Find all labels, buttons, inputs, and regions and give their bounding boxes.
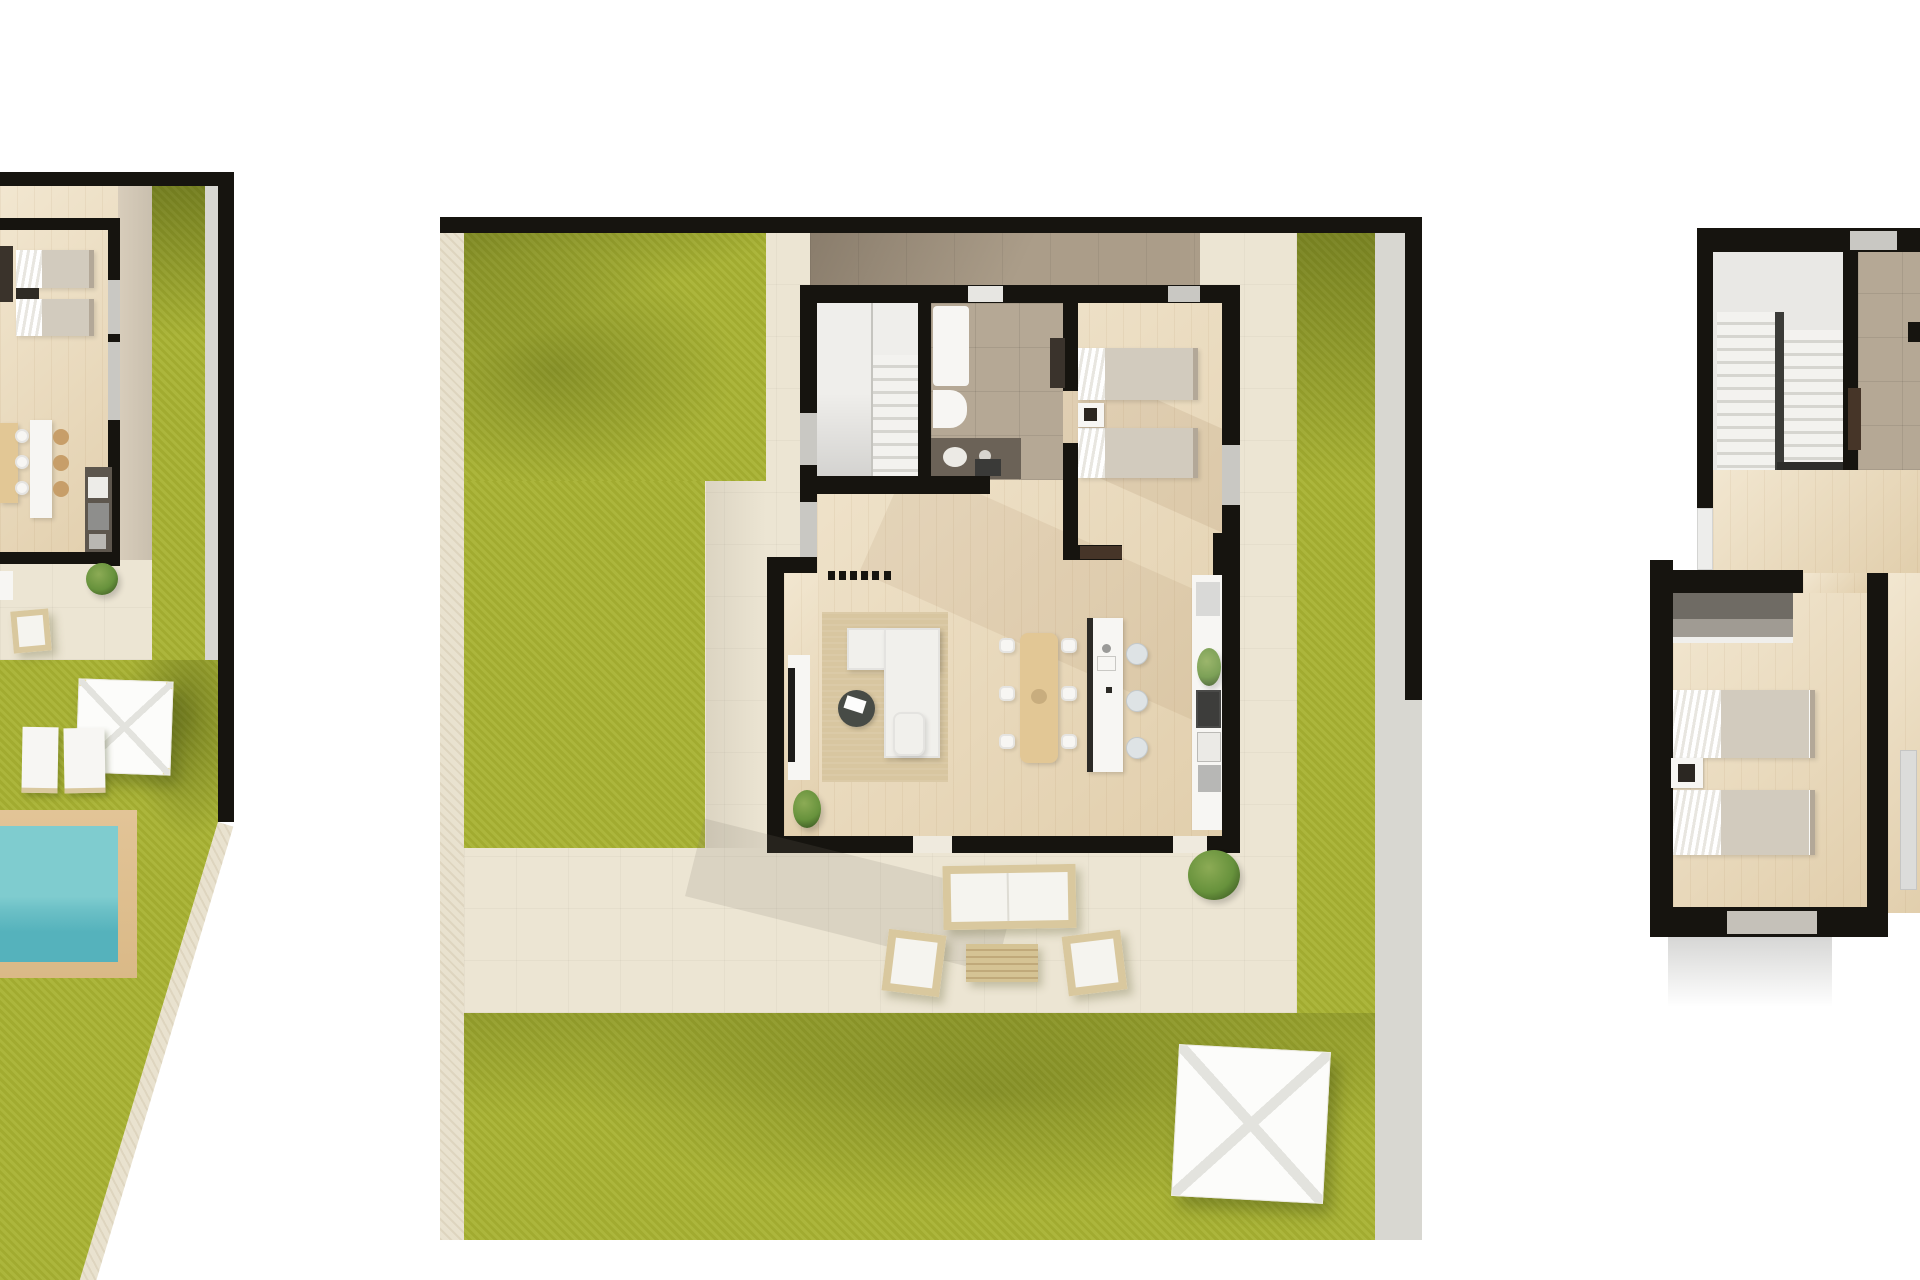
center-door-track-dash-2 [839, 571, 846, 580]
center-bath-shower [933, 306, 969, 386]
left-dining-chair-2 [15, 455, 29, 469]
left-stool-3 [53, 481, 69, 497]
center-island-hob-dot [1106, 687, 1112, 693]
center-right-window [1222, 445, 1240, 505]
center-door-track-dash-6 [884, 571, 891, 580]
center-path-right-lower [1375, 700, 1422, 1240]
center-bath-bed-wall-2 [1063, 443, 1078, 560]
center-coffee-table-laptop [843, 695, 866, 714]
center-dining-chair-5 [1061, 686, 1077, 701]
center-bed-2-pillow [1078, 428, 1105, 478]
left-kitchen-sink [88, 477, 108, 498]
left-bed-2-frame [89, 299, 94, 336]
left-stool-1 [53, 429, 69, 445]
right-bedroom-top-wall [1650, 570, 1803, 593]
center-outdoor-armchair-right [1062, 930, 1128, 997]
left-dining-chair-1 [15, 429, 29, 443]
left-pool-water [0, 826, 118, 962]
center-stone-path-left [440, 233, 464, 1240]
center-living-plant [793, 790, 821, 828]
center-island-dark-edge [1087, 618, 1093, 772]
right-nightstand-plant [1678, 764, 1695, 782]
center-dining-chair-1 [999, 638, 1015, 653]
center-stool-1 [1126, 643, 1148, 665]
left-cooktop [88, 503, 109, 530]
center-boundary-right-wall [1405, 217, 1422, 700]
center-coffee-table [838, 690, 875, 727]
center-dining-table [1020, 633, 1058, 763]
center-dining-chair-2 [999, 686, 1015, 701]
right-bed-1-pillow [1673, 690, 1721, 758]
center-house-left-wall-2 [800, 465, 817, 502]
left-bed-1 [16, 250, 94, 288]
left-bed-2-pillow [16, 299, 42, 336]
left-patio-bush [86, 563, 118, 595]
center-under-stair-wall [817, 476, 990, 494]
center-stool-3 [1126, 737, 1148, 759]
center-parasol [1171, 1044, 1331, 1204]
center-toilet [933, 390, 967, 428]
left-bed-1-frame [89, 250, 94, 288]
center-door-track-dash-3 [850, 571, 857, 580]
left-top-wall [0, 172, 234, 186]
right-bedroom-left-wall [1650, 560, 1673, 937]
left-bedroom-window [108, 280, 120, 334]
right-wardrobe-top [1673, 593, 1793, 619]
right-left-wall [1697, 252, 1713, 508]
right-bedroom-right-wall [1867, 573, 1888, 913]
center-lawn-left [464, 481, 705, 848]
center-bed-1-frame [1193, 348, 1198, 400]
left-nightstand [16, 288, 39, 299]
center-bed-1-blanket [1105, 348, 1193, 400]
center-dining-chair-6 [1061, 734, 1077, 749]
center-stool-2 [1126, 690, 1148, 712]
center-island-faucet [1102, 644, 1111, 653]
center-nightstand-decor [1084, 408, 1097, 421]
center-stair-shadow [817, 393, 871, 481]
right-ground-shadow [1668, 937, 1832, 1007]
center-stair-steps [873, 355, 918, 481]
right-stair-rail [1775, 312, 1784, 474]
right-stair-door-leaf [1848, 388, 1861, 450]
left-bedroom-wall-h [0, 218, 110, 230]
left-sun-lounger-1 [21, 727, 58, 794]
center-outdoor-armchair-left [881, 929, 946, 998]
center-left-window-1 [800, 413, 817, 465]
center-dining-chair-3 [999, 734, 1015, 749]
left-dining-chair-3 [15, 481, 29, 495]
center-bedroom-wardrobe [1050, 338, 1065, 388]
center-vanity-sink [943, 447, 967, 467]
center-stair-bath-wall [918, 303, 931, 481]
center-counter-plant [1197, 648, 1221, 686]
right-stair-flight-left [1717, 312, 1775, 474]
center-island-sink [1097, 656, 1116, 671]
right-hall-floor [1713, 470, 1920, 573]
center-house-bottom-wall-2 [952, 836, 1173, 853]
center-patio-door-2 [1173, 836, 1207, 853]
right-bedroom-door-opening [1803, 573, 1867, 593]
left-wardrobe [0, 246, 13, 302]
center-bath-mat [975, 459, 1001, 476]
right-bed-2-frame [1810, 790, 1815, 855]
center-house-step-wall [767, 557, 817, 573]
center-floor-lamp [795, 750, 810, 765]
right-stair-flight-right [1784, 330, 1843, 462]
center-boundary-top-wall [440, 217, 1422, 233]
left-garden-strip-shadow [152, 186, 205, 336]
left-kitchen-island [30, 420, 52, 518]
right-landing-tile [1858, 252, 1920, 470]
right-wardrobe-shelf [1673, 637, 1793, 643]
center-door-track-dash-4 [861, 571, 868, 580]
left-lounge-chair [10, 608, 52, 653]
center-outdoor-table [966, 944, 1038, 982]
center-outdoor-sofa-seam [1007, 873, 1010, 921]
center-fridge [1196, 582, 1220, 616]
center-left-window-2 [800, 502, 817, 557]
center-house-left-wall-1 [800, 303, 817, 413]
right-bed-1-blanket [1721, 690, 1809, 758]
right-left-window [1697, 508, 1713, 570]
center-lawn-right-shadow [1297, 233, 1375, 483]
left-bed-1-pillow [16, 250, 42, 288]
center-house-left-wall-3 [767, 573, 784, 853]
center-door-track-dash-5 [872, 571, 879, 580]
left-kitchen-appliance [89, 534, 106, 549]
center-bedroom-window [1168, 286, 1200, 302]
center-nightstand [1078, 403, 1104, 427]
center-outdoor-sofa [942, 864, 1076, 930]
center-terrace-bush [1188, 850, 1240, 900]
center-entrance-porch [810, 233, 1200, 285]
center-dining-chair-4 [1061, 638, 1077, 653]
left-wall-window-2 [108, 342, 120, 420]
right-bed-2-pillow [1673, 790, 1721, 855]
center-bed-2-blanket [1105, 428, 1193, 478]
center-entrance-door [968, 286, 1003, 302]
center-kitchen-sink [1197, 732, 1221, 762]
floor-plans-canvas [0, 0, 1920, 1280]
left-side-terrace [118, 186, 152, 564]
left-bed-2 [16, 299, 94, 336]
center-bed-1 [1078, 348, 1198, 400]
center-path-right [1375, 233, 1405, 700]
center-lawn-upper-left-shadow [464, 233, 766, 481]
center-staircase [817, 303, 918, 481]
right-bedroom-bottom-window [1727, 911, 1817, 934]
left-stool-2 [53, 455, 69, 471]
left-bed-2-blanket [42, 299, 89, 336]
center-dining-centerpiece [1031, 689, 1047, 704]
left-sun-lounger-2 [63, 728, 105, 794]
center-door-track-dash-1 [828, 571, 835, 580]
center-hall-corner-wall [1213, 533, 1240, 580]
right-bed-2-blanket [1721, 790, 1809, 855]
right-bed-2 [1673, 790, 1815, 855]
center-bed-2 [1078, 428, 1198, 478]
right-open-door-leaf [1900, 750, 1917, 890]
center-sofa-pouf [893, 712, 925, 756]
left-patio-planter [0, 571, 13, 600]
center-hall-door [1080, 546, 1122, 559]
right-wardrobe [1673, 593, 1793, 643]
center-kitchen-island [1087, 618, 1123, 772]
center-cooktop [1196, 690, 1221, 728]
left-right-wall [218, 186, 234, 822]
center-kitchen-appliance [1198, 765, 1221, 792]
center-bed-1-pillow [1078, 348, 1105, 400]
center-bed-2-frame [1193, 428, 1198, 478]
right-bed-1 [1673, 690, 1815, 758]
left-bed-1-blanket [42, 250, 89, 288]
center-bath-bed-wall-1 [1063, 303, 1078, 391]
center-tv [788, 668, 795, 762]
right-top-window [1850, 231, 1897, 250]
right-bed-1-frame [1810, 690, 1815, 758]
right-wall-stub [1908, 322, 1920, 342]
center-patio-door-1 [913, 836, 952, 853]
right-nightstand [1671, 758, 1703, 788]
